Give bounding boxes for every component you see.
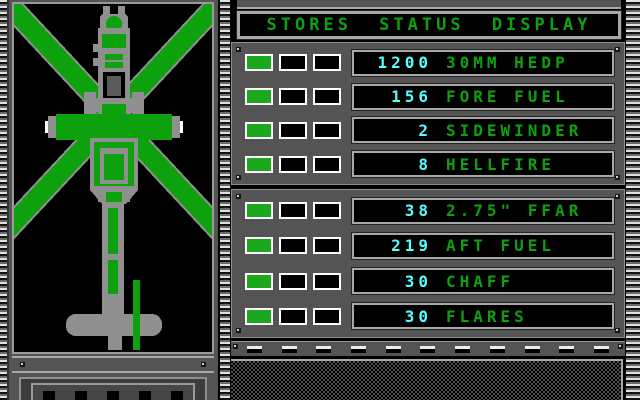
stores-qty: 219 — [354, 236, 432, 255]
vent-panel-left — [12, 371, 214, 400]
stores-qty: 156 — [354, 87, 432, 106]
store-indicator-light — [245, 88, 273, 105]
store-indicator-light — [279, 237, 307, 254]
hinge-strip-left — [0, 0, 9, 400]
stores-qty: 38 — [354, 201, 432, 220]
stores-lcd: 2 SIDEWINDER — [352, 117, 614, 143]
tail-rotor — [133, 280, 140, 350]
helicopter-graphic — [14, 4, 212, 350]
screw-icon — [615, 175, 620, 180]
vent-dash — [525, 346, 540, 353]
stores-label: FORE FUEL — [446, 87, 569, 106]
store-indicator-light — [245, 122, 273, 139]
stores-lcd: 38 2.75" FFAR — [352, 198, 614, 224]
checker-plate — [231, 359, 623, 400]
screw-icon — [236, 194, 241, 199]
vent-panel-inner — [19, 377, 207, 400]
store-indicator-light — [313, 237, 341, 254]
vent-dash — [594, 346, 609, 353]
stores-qty: 30 — [354, 272, 432, 291]
store-indicator-light — [279, 202, 307, 219]
vent-dash — [490, 346, 505, 353]
store-indicator-light — [245, 156, 273, 173]
store-indicator-light — [313, 156, 341, 173]
horizontal-stabilizer — [66, 314, 162, 336]
stores-qty: 30 — [354, 307, 432, 326]
store-indicator-light — [313, 54, 341, 71]
screw-icon — [618, 344, 623, 349]
vent-dash — [282, 346, 297, 353]
stores-label: FLARES — [446, 307, 528, 326]
store-indicator-light — [313, 273, 341, 290]
store-indicator-light — [245, 202, 273, 219]
vent-slots — [31, 383, 195, 400]
stores-qty: 8 — [354, 155, 432, 174]
screw-icon — [233, 344, 238, 349]
stores-row: 30 CHAFF — [232, 267, 624, 295]
store-indicator-light — [245, 54, 273, 71]
stores-row: 219 AFT FUEL — [232, 232, 624, 260]
screw-icon — [236, 47, 241, 52]
store-indicator-light — [313, 308, 341, 325]
stores-row: 156 FORE FUEL — [232, 83, 624, 111]
store-indicator-light — [279, 54, 307, 71]
stores-group-2: 38 2.75" FFAR 219 AFT FUEL 30 CH — [231, 189, 625, 338]
stores-lcd: 30 FLARES — [352, 303, 614, 329]
store-indicator-light — [245, 273, 273, 290]
stores-label: 2.75" FFAR — [446, 201, 582, 220]
store-indicator-light — [279, 308, 307, 325]
stores-label: SIDEWINDER — [446, 121, 582, 140]
vent-dash — [455, 346, 470, 353]
stores-lcd: 30 CHAFF — [352, 268, 614, 294]
vent-dash — [420, 346, 435, 353]
store-indicator-light — [279, 273, 307, 290]
store-indicator-light — [313, 202, 341, 219]
stores-lcd: 219 AFT FUEL — [352, 233, 614, 259]
stores-lcd: 1200 30MM HEDP — [352, 50, 614, 76]
stores-label: CHAFF — [446, 272, 514, 291]
stores-row: 2 SIDEWINDER — [232, 116, 624, 144]
stores-label: AFT FUEL — [446, 236, 555, 255]
stores-label: 30MM HEDP — [446, 53, 569, 72]
stores-group-1: 1200 30MM HEDP 156 FORE FUEL 2 S — [231, 42, 625, 185]
title-bar: STORES STATUS DISPLAY — [237, 11, 621, 39]
screw-icon — [201, 362, 206, 367]
vent-slot — [43, 391, 55, 400]
aircraft-panel — [9, 0, 218, 400]
stores-row: 38 2.75" FFAR — [232, 197, 624, 225]
stores-row: 30 FLARES — [232, 302, 624, 330]
store-indicator-light — [313, 88, 341, 105]
store-indicator-light — [245, 308, 273, 325]
stores-status-screen: STORES STATUS DISPLAY 1200 30MM HEDP — [0, 0, 640, 400]
store-indicator-light — [279, 122, 307, 139]
panel-strip — [12, 356, 214, 370]
store-indicator-light — [279, 156, 307, 173]
screw-icon — [615, 328, 620, 333]
vent-slot — [75, 391, 87, 400]
stores-qty: 1200 — [354, 53, 432, 72]
hinge-strip-right — [626, 0, 640, 400]
stores-row: 1200 30MM HEDP — [232, 49, 624, 77]
screw-icon — [236, 328, 241, 333]
hinge-strip-middle — [218, 0, 231, 400]
stores-label: HELLFIRE — [446, 155, 555, 174]
screw-icon — [615, 47, 620, 52]
stores-lcd: 8 HELLFIRE — [352, 151, 614, 177]
vent-slot — [107, 391, 119, 400]
stores-row: 8 HELLFIRE — [232, 150, 624, 178]
screw-icon — [615, 194, 620, 199]
vent-slot — [139, 391, 151, 400]
vent-dash — [386, 346, 401, 353]
stores-lcd: 156 FORE FUEL — [352, 84, 614, 110]
page-title: STORES STATUS DISPLAY — [267, 15, 592, 35]
vent-strip — [231, 341, 625, 356]
vent-dash — [351, 346, 366, 353]
aircraft-top-view-display — [12, 2, 214, 354]
screw-icon — [20, 362, 25, 367]
vent-dash — [316, 346, 331, 353]
store-indicator-light — [245, 237, 273, 254]
vent-dash — [559, 346, 574, 353]
screw-icon — [236, 175, 241, 180]
stores-panel-column: STORES STATUS DISPLAY 1200 30MM HEDP — [231, 0, 626, 400]
stores-qty: 2 — [354, 121, 432, 140]
store-indicator-light — [279, 88, 307, 105]
panel-edge-top — [237, 0, 621, 9]
vent-dash — [247, 346, 262, 353]
vent-slot — [171, 391, 183, 400]
store-indicator-light — [313, 122, 341, 139]
